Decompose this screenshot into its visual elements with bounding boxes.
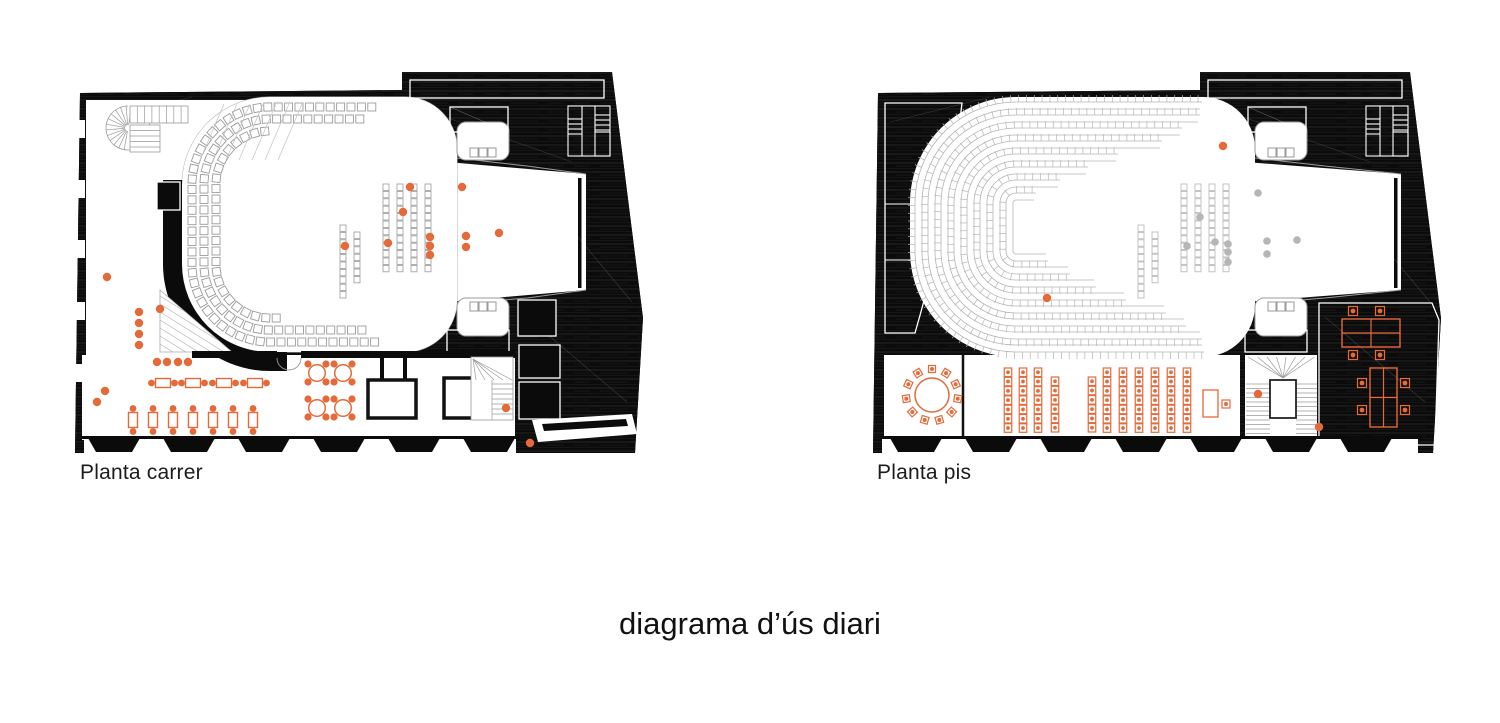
floorplan-street-level xyxy=(72,62,650,460)
diagram-caption: diagrama d’ús diari xyxy=(0,606,1500,642)
facade-crenellation xyxy=(82,436,520,453)
label-planta-carrer: Planta carrer xyxy=(80,461,203,485)
floorplan-upper-level xyxy=(870,62,1448,460)
auditorium-hall xyxy=(910,97,1255,357)
label-planta-pis: Planta pis xyxy=(877,461,971,485)
facade-crenellation xyxy=(880,436,1422,453)
diagram-canvas: Planta carrer Planta pis diagrama d’ús d… xyxy=(0,0,1500,723)
